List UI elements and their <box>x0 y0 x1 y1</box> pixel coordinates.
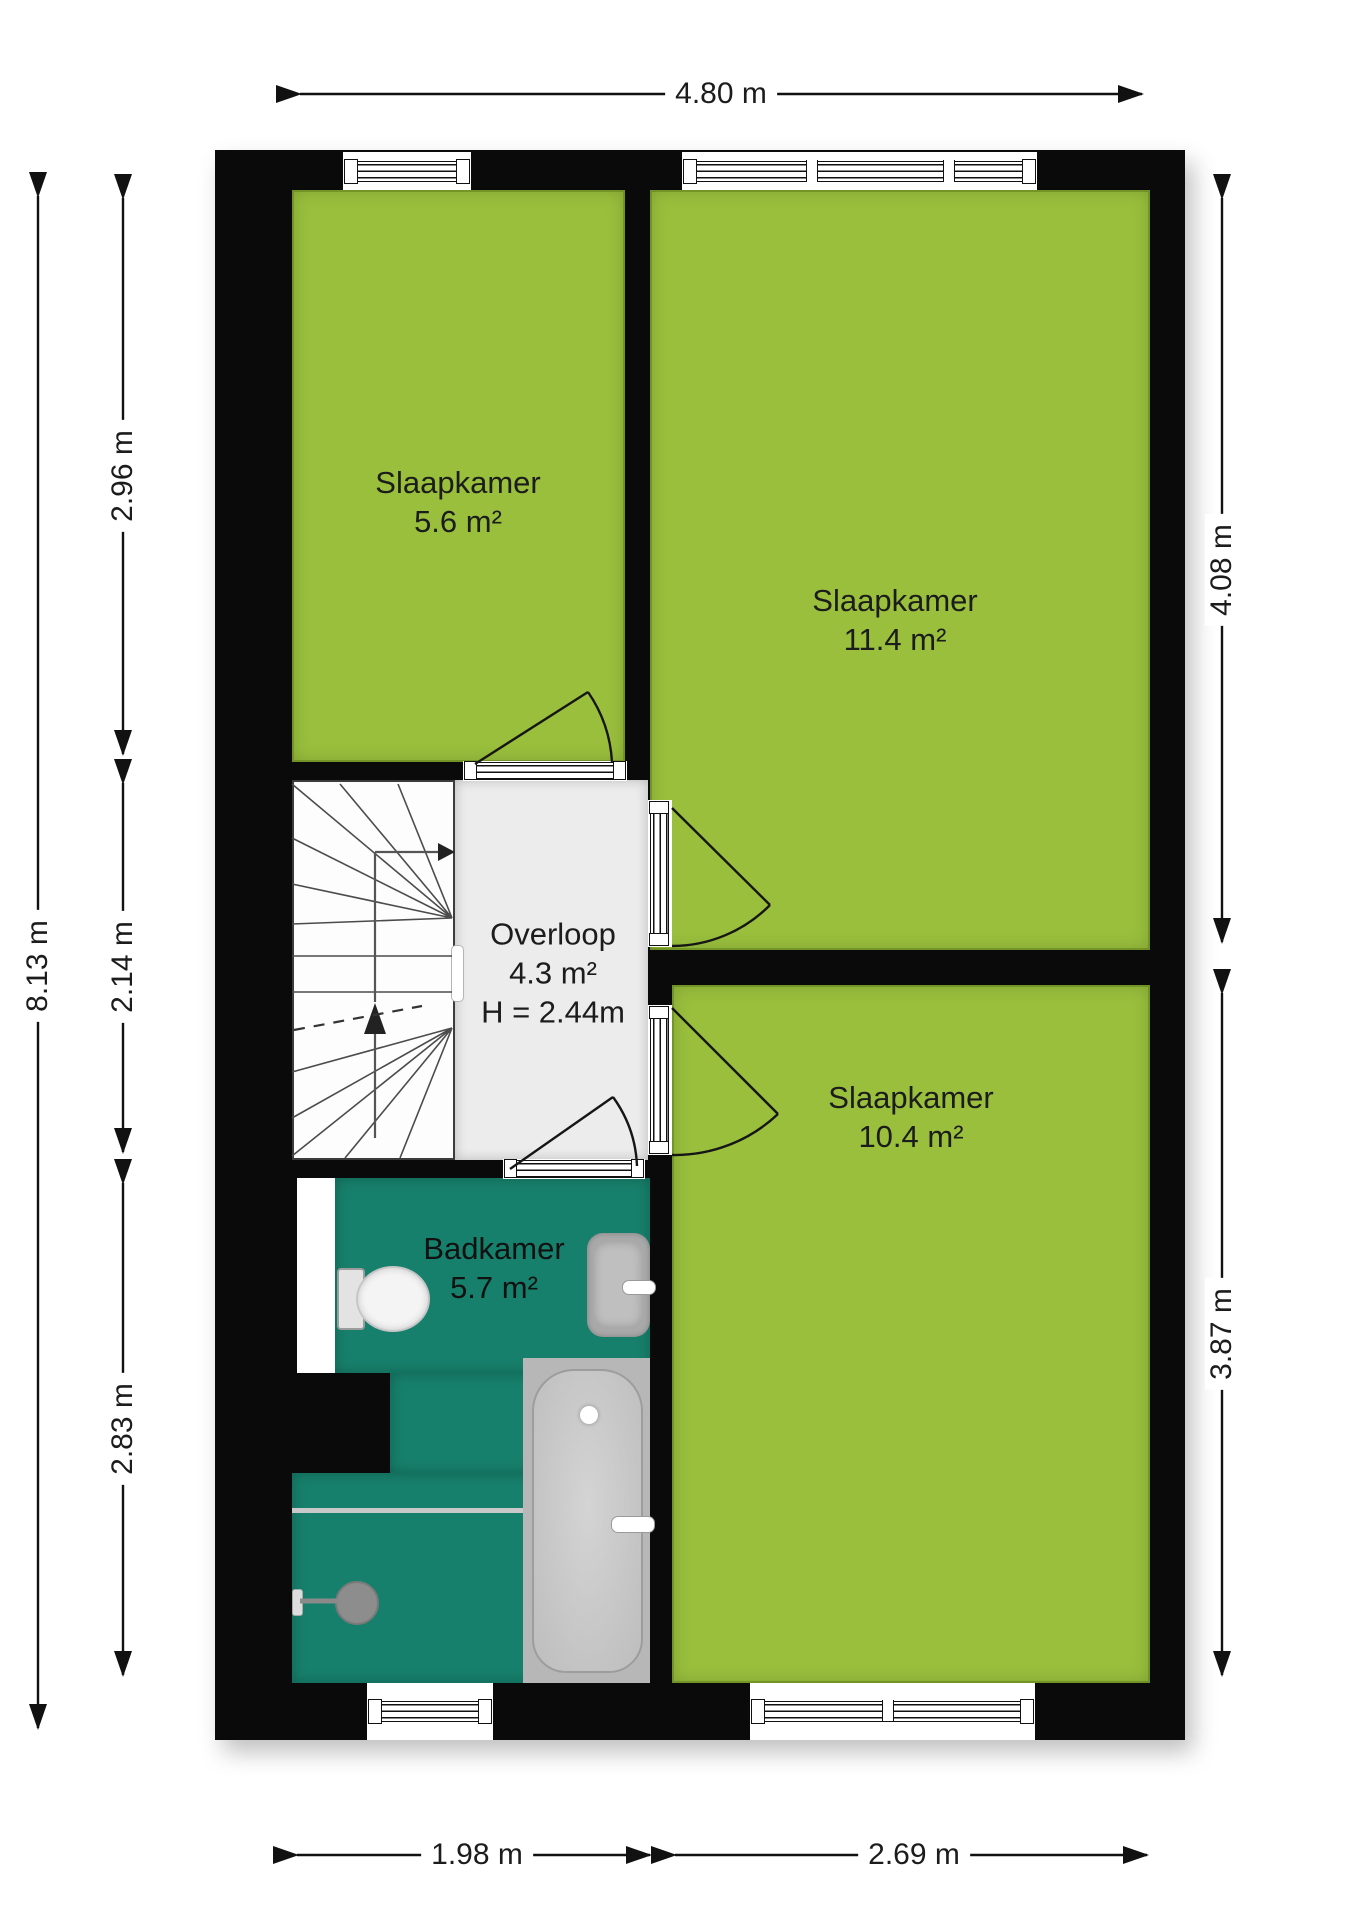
window-icon <box>367 1683 493 1740</box>
room-name: Slaapkamer <box>375 463 540 502</box>
shower-mount-icon <box>292 1589 303 1616</box>
dim-left-1: 2.96 m <box>106 420 140 532</box>
staircase <box>292 780 455 1160</box>
dim-bottom-2: 2.69 m <box>858 1838 970 1872</box>
room-height: H = 2.44m <box>481 993 625 1032</box>
room-name: Slaapkamer <box>812 581 977 620</box>
door-icon <box>648 800 672 947</box>
room-label-slaapkamer-114: Slaapkamer 11.4 m² <box>812 581 977 659</box>
dim-left-total: 8.13 m <box>21 910 55 1022</box>
room-label-badkamer: Badkamer 5.7 m² <box>423 1229 564 1307</box>
duct-void <box>297 1178 335 1373</box>
room-label-slaapkamer-104: Slaapkamer 10.4 m² <box>828 1078 993 1156</box>
faucet-icon <box>622 1280 656 1295</box>
shower-partition <box>292 1508 523 1513</box>
door-icon <box>463 761 627 781</box>
shower-icon <box>335 1581 379 1625</box>
room-name: Slaapkamer <box>828 1078 993 1117</box>
stair-newel <box>451 945 464 1002</box>
dim-left-3: 2.83 m <box>106 1373 140 1485</box>
dim-right-1: 4.08 m <box>1205 514 1239 626</box>
room-area: 5.6 m² <box>375 502 540 541</box>
room-name: Overloop <box>481 915 625 954</box>
toilet-bowl-icon <box>356 1266 430 1332</box>
dim-bottom-1: 1.98 m <box>421 1838 533 1872</box>
window-icon <box>343 152 471 190</box>
door-icon <box>503 1159 645 1179</box>
room-label-slaapkamer-56: Slaapkamer 5.6 m² <box>375 463 540 541</box>
room-area: 4.3 m² <box>481 954 625 993</box>
room-name: Badkamer <box>423 1229 564 1268</box>
room-area: 10.4 m² <box>828 1117 993 1156</box>
door-icon <box>648 1005 672 1155</box>
dim-left-2: 2.14 m <box>106 911 140 1023</box>
window-icon <box>750 1683 1035 1740</box>
room-slaapkamer-114 <box>650 190 1150 950</box>
room-area: 11.4 m² <box>812 620 977 659</box>
window-icon <box>682 152 1037 190</box>
room-area: 5.7 m² <box>423 1268 564 1307</box>
dim-top: 4.80 m <box>665 77 777 111</box>
dim-right-2: 3.87 m <box>1205 1278 1239 1390</box>
bath-faucet-icon <box>611 1516 655 1533</box>
floorplan-page: Slaapkamer 5.6 m² Slaapkamer 11.4 m² Ove… <box>0 0 1358 1920</box>
room-label-overloop: Overloop 4.3 m² H = 2.44m <box>481 915 625 1032</box>
